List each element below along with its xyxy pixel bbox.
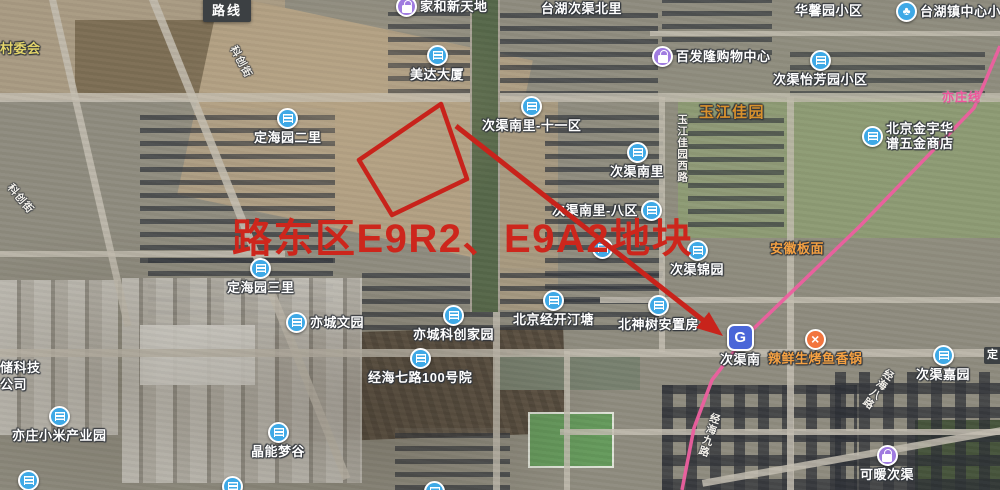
poi-label: 可暖次渠 bbox=[860, 467, 914, 483]
metro-icon bbox=[727, 324, 754, 351]
poi-taihu-ciqu-beili[interactable]: 台湖次渠北里 bbox=[541, 1, 622, 17]
poi-ciqu-jiayuan[interactable]: 次渠嘉园 bbox=[916, 345, 970, 383]
poi-yifangyuan[interactable]: 次渠怡芳园小区 bbox=[773, 50, 868, 88]
building-icon bbox=[627, 142, 648, 163]
poi-label: 北京经开汀塘 bbox=[513, 312, 594, 328]
poi-label: 北神树安置房 bbox=[618, 317, 699, 333]
poi-jiahe-xintiandi[interactable]: 家和新天地 bbox=[396, 0, 488, 17]
shopping-bag-icon bbox=[396, 0, 417, 17]
poi-label: 玉江佳园 bbox=[699, 104, 765, 122]
poi-anhui-banmian[interactable]: 安徽板面 bbox=[770, 241, 824, 257]
building-icon bbox=[410, 348, 431, 369]
shopping-bag-icon bbox=[652, 46, 673, 67]
building-icon bbox=[49, 406, 70, 427]
road bbox=[650, 31, 1000, 36]
building-icon bbox=[268, 422, 289, 443]
building-icon bbox=[521, 96, 542, 117]
annotation-arrow-head bbox=[696, 312, 723, 336]
poi-label: 亦城文园 bbox=[310, 315, 364, 331]
partial-poi-icon[interactable] bbox=[18, 470, 39, 490]
poi-label: 百发隆购物中心 bbox=[676, 49, 771, 65]
poi-baifalong-mall[interactable]: 百发隆购物中心 bbox=[652, 46, 771, 67]
poi-label: 次渠嘉园 bbox=[916, 367, 970, 383]
poi-label: 次渠锦园 bbox=[670, 262, 724, 278]
partial-poi-icon[interactable] bbox=[222, 476, 243, 490]
poi-yicheng-kechuang[interactable]: 亦城科创家园 bbox=[413, 305, 494, 343]
building-icon bbox=[933, 345, 954, 366]
poi-ciqunan-station[interactable]: 次渠南 bbox=[720, 324, 761, 368]
poi-label: 次渠怡芳园小区 bbox=[773, 72, 868, 88]
poi-jingkai-tingtang[interactable]: 北京经开汀塘 bbox=[513, 290, 594, 328]
school-tree-icon bbox=[896, 1, 917, 22]
poi-ciqunanli-11[interactable]: 次渠南里-十一区 bbox=[482, 96, 581, 134]
poi-xiaomi-park[interactable]: 亦庄小米产业园 bbox=[12, 406, 107, 444]
poi-village-committee[interactable]: 村委会 bbox=[0, 41, 41, 57]
road bbox=[787, 97, 794, 490]
poi-label: 辣鲜生烤鱼香锅 bbox=[768, 351, 863, 367]
poi-kenuan-ciqu[interactable]: 可暖次渠 bbox=[860, 445, 914, 483]
food-icon bbox=[805, 329, 826, 350]
route-tooltip[interactable]: 路线 bbox=[203, 0, 251, 22]
poi-ciqunanli[interactable]: 次渠南里 bbox=[610, 142, 664, 180]
sports-field bbox=[528, 412, 614, 468]
building-icon bbox=[277, 108, 298, 129]
poi-label: 亦城科创家园 bbox=[413, 327, 494, 343]
shopping-bag-icon bbox=[877, 445, 898, 466]
poi-dinghaiyuan-2[interactable]: 定海园二里 bbox=[254, 108, 322, 146]
building-icon bbox=[543, 290, 564, 311]
poi-label: 经海七路100号院 bbox=[368, 370, 472, 386]
building-icon bbox=[286, 312, 307, 333]
poi-meida-building[interactable]: 美达大厦 bbox=[410, 45, 464, 83]
poi-jinghai7-yard100[interactable]: 经海七路100号院 bbox=[368, 348, 472, 386]
poi-jingneng-menggu[interactable]: 晶能梦谷 bbox=[251, 422, 305, 460]
canal bbox=[470, 0, 500, 312]
clipped-label-box: 定 bbox=[984, 347, 1000, 364]
poi-label: 次渠南里 bbox=[610, 164, 664, 180]
poi-beishenshu[interactable]: 北神树安置房 bbox=[618, 295, 699, 333]
poi-label: 定海园二里 bbox=[254, 130, 322, 146]
poi-jinyu-hardware[interactable]: 北京金宇华谱五金商店 bbox=[862, 121, 956, 152]
building-icon bbox=[862, 126, 883, 147]
road bbox=[564, 351, 570, 490]
poi-label: 定海园三里 bbox=[227, 280, 295, 296]
building-icon bbox=[648, 295, 669, 316]
poi-label: 次渠南里-十一区 bbox=[482, 118, 581, 134]
poi-label: 华馨园小区 bbox=[795, 3, 863, 19]
poi-label: 次渠南里-八区 bbox=[552, 203, 638, 219]
poi-label: 美达大厦 bbox=[410, 67, 464, 83]
terrain-dirt bbox=[75, 20, 215, 98]
poi-label: 公司 bbox=[0, 377, 27, 393]
poi-label: 北京金宇华谱五金商店 bbox=[886, 121, 956, 152]
subway-line-label: 亦庄线 bbox=[942, 91, 981, 103]
area-label-yujiang-jiayuan[interactable]: 玉江佳园 bbox=[699, 104, 765, 122]
poi-huaxinyuan[interactable]: 华馨园小区 bbox=[795, 3, 863, 19]
building-icon bbox=[427, 45, 448, 66]
poi-label: 安徽板面 bbox=[770, 241, 824, 257]
satellite-map[interactable]: 科创街 科创街 玉江佳园西路 经海九路 经海八路 家和新天地 台湖次渠北里 华馨… bbox=[0, 0, 1000, 490]
poi-taihu-school[interactable]: 台湖镇中心小 bbox=[896, 1, 1000, 22]
poi-label: 储科技 bbox=[0, 360, 41, 376]
building-icon bbox=[810, 50, 831, 71]
poi-label: 村委会 bbox=[0, 41, 41, 57]
poi-label: 台湖次渠北里 bbox=[541, 1, 622, 17]
road bbox=[560, 429, 1000, 435]
poi-label: 亦庄小米产业园 bbox=[12, 428, 107, 444]
poi-yicheng-wenyuan[interactable]: 亦城文园 bbox=[286, 312, 364, 333]
building-cluster bbox=[688, 115, 784, 227]
poi-label: 晶能梦谷 bbox=[251, 444, 305, 460]
poi-laxiansheng-restaurant[interactable]: 辣鲜生烤鱼香锅 bbox=[768, 329, 863, 367]
poi-label: 家和新天地 bbox=[420, 0, 488, 14]
poi-dinghaiyuan-3[interactable]: 定海园三里 bbox=[227, 258, 295, 296]
station-label: 次渠南 bbox=[720, 352, 761, 368]
building-icon bbox=[250, 258, 271, 279]
road-label: 科创街 bbox=[5, 182, 36, 216]
road-label: 玉江佳园西路 bbox=[676, 114, 688, 183]
poi-label: 台湖镇中心小 bbox=[920, 4, 1000, 20]
building-cluster bbox=[498, 10, 658, 96]
building-icon bbox=[443, 305, 464, 326]
annotation-text: 路东区E9R2、E9A2地块 bbox=[232, 219, 693, 259]
poi-storage-tech-company[interactable]: 储科技 公司 bbox=[0, 360, 41, 392]
